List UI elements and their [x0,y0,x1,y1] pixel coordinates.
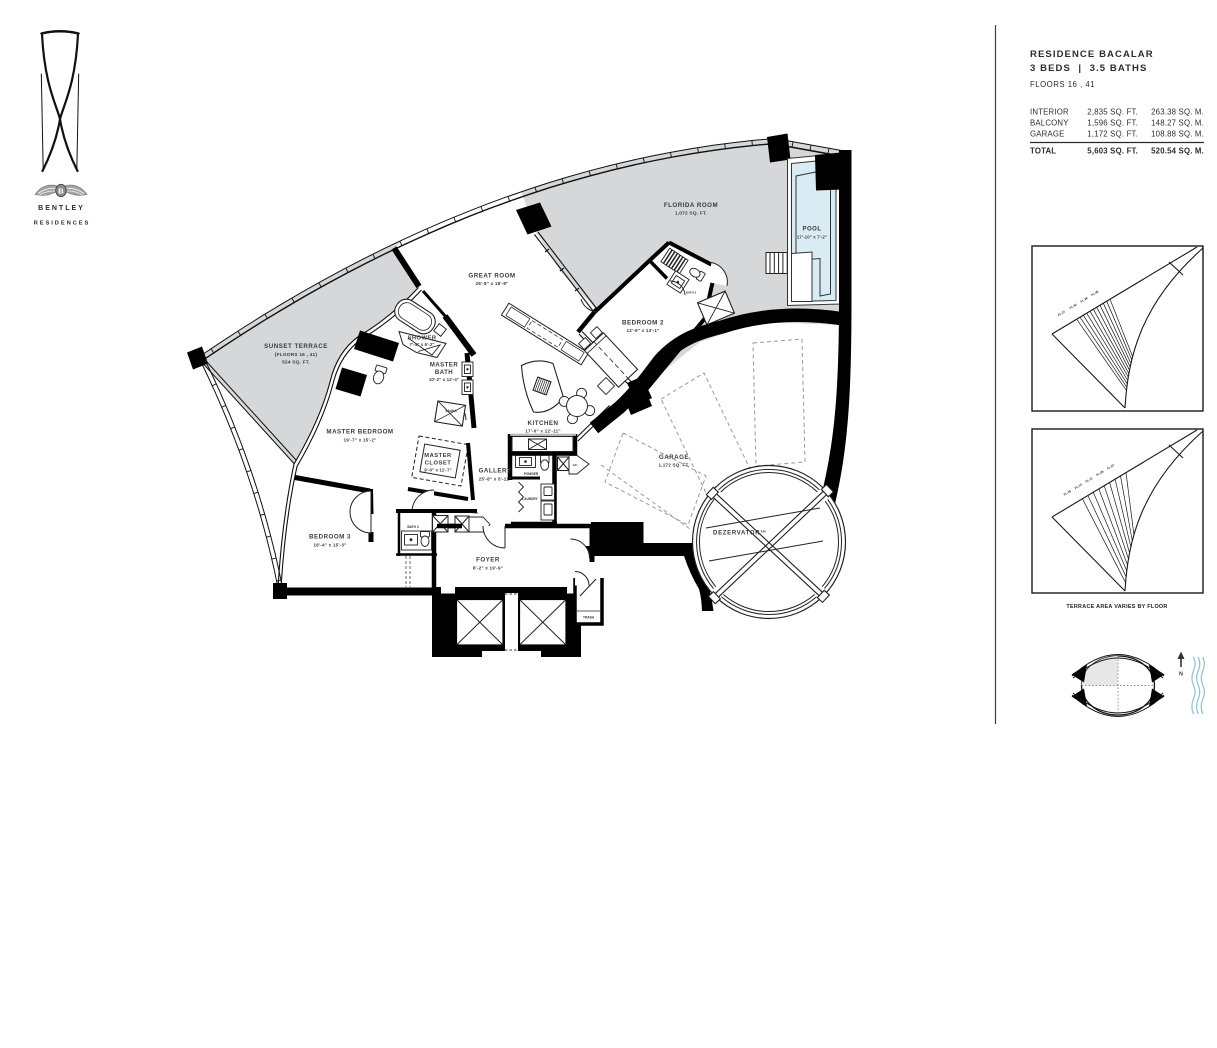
svg-text:FLOORS 16 , 41: FLOORS 16 , 41 [1030,80,1095,89]
svg-text:TRASH: TRASH [583,616,595,620]
svg-text:BATH: BATH [435,370,453,376]
svg-text:MASTER: MASTER [424,453,452,459]
svg-text:GARAGE: GARAGE [1030,130,1065,139]
svg-text:108.88 SQ. M.: 108.88 SQ. M. [1151,130,1204,139]
svg-text:FL.57: FL.57 [1106,463,1115,471]
svg-text:1,072 SQ. FT.: 1,072 SQ. FT. [675,211,707,217]
svg-text:BALCONY: BALCONY [1030,119,1069,128]
svg-text:BATH 2: BATH 2 [686,291,697,295]
svg-text:8'-2" x 19'-9": 8'-2" x 19'-9" [473,566,503,571]
svg-text:17'-10" x 7'-2": 17'-10" x 7'-2" [797,235,827,240]
svg-text:263.38 SQ. M.: 263.38 SQ. M. [1151,108,1204,117]
svg-text:FL.16: FL.16 [1063,489,1072,497]
svg-text:RESIDENCES: RESIDENCES [34,221,91,227]
svg-text:TOTAL: TOTAL [1030,147,1056,156]
svg-text:FL.11: FL.11 [1085,476,1094,484]
svg-text:LAUNDRY: LAUNDRY [522,497,538,501]
svg-text:FL.40: FL.40 [1069,302,1078,310]
svg-text:A/C: A/C [573,463,578,467]
svg-text:N: N [1179,672,1183,678]
svg-text:MASTER BEDROOM: MASTER BEDROOM [326,429,393,436]
svg-text:TERRACE AREA VARIES BY FLOOR: TERRACE AREA VARIES BY FLOOR [1066,604,1167,610]
svg-text:BEDROOM 3: BEDROOM 3 [309,534,351,541]
svg-text:MASTER: MASTER [430,363,459,369]
svg-text:12'-9" x 13'-1": 12'-9" x 13'-1" [626,328,659,333]
svg-text:FL.09: FL.09 [1096,469,1105,477]
svg-text:KITCHEN: KITCHEN [528,420,559,427]
svg-text:1,172 SQ. FT.: 1,172 SQ. FT. [659,463,690,468]
svg-text:CLOSET: CLOSET [425,461,452,467]
svg-text:19'-7" x 15'-2": 19'-7" x 15'-2" [343,438,376,443]
svg-text:FL.37: FL.37 [1057,309,1066,317]
svg-text:FL.36: FL.36 [1080,296,1089,304]
svg-text:2,835 SQ. FT.: 2,835 SQ. FT. [1087,108,1138,117]
svg-text:520.54 SQ. M.: 520.54 SQ. M. [1151,147,1204,156]
svg-text:17'-0" x 12'-11": 17'-0" x 12'-11" [525,429,561,434]
svg-text:A/C: A/C [474,511,480,515]
svg-text:524 SQ. FT.: 524 SQ. FT. [282,360,310,366]
svg-text:BENTLEY: BENTLEY [38,205,85,212]
svg-text:DEZERVATOR™: DEZERVATOR™ [713,530,767,537]
svg-text:9'-0" x 11'-7": 9'-0" x 11'-7" [424,468,451,473]
svg-text:5,603 SQ. FT.: 5,603 SQ. FT. [1087,147,1138,156]
svg-text:FL.48: FL.48 [1090,289,1099,297]
svg-text:BATH 3: BATH 3 [407,525,419,529]
svg-text:POWDER: POWDER [524,472,539,476]
svg-text:GREAT ROOM: GREAT ROOM [468,273,515,280]
svg-text:1,596 SQ. FT.: 1,596 SQ. FT. [1087,119,1138,128]
svg-text:SHOWER: SHOWER [407,336,436,342]
svg-text:B: B [58,186,64,195]
svg-text:3 BEDS | 3.5 BATHS: 3 BEDS | 3.5 BATHS [1030,63,1147,74]
svg-text:INTERIOR: INTERIOR [1030,108,1069,117]
svg-text:FL.14: FL.14 [1074,482,1083,490]
svg-text:7'-4" x 6'-2": 7'-4" x 6'-2" [409,342,434,347]
svg-text:FOYER: FOYER [476,557,500,564]
svg-text:148.27 SQ. M.: 148.27 SQ. M. [1151,119,1204,128]
svg-text:26'-8" x 18'-8": 26'-8" x 18'-8" [475,281,508,286]
svg-text:GALLERY: GALLERY [479,468,512,475]
svg-text:RESIDENCE BACALAR: RESIDENCE BACALAR [1030,49,1154,60]
svg-text:10'-2" x 12'-4": 10'-2" x 12'-4" [429,377,459,382]
svg-text:FLORIDA ROOM: FLORIDA ROOM [664,202,718,209]
svg-text:BEDROOM 2: BEDROOM 2 [622,320,664,327]
svg-text:SAUNA: SAUNA [445,409,457,413]
svg-text:1,172 SQ. FT.: 1,172 SQ. FT. [1087,130,1138,139]
svg-text:POOL: POOL [802,227,821,233]
svg-text:(FLOORS 16 , 41): (FLOORS 16 , 41) [275,352,318,358]
svg-text:SUNSET TERRACE: SUNSET TERRACE [264,343,328,350]
svg-text:GARAGE: GARAGE [659,454,689,461]
svg-text:25'-8" x 5'-11": 25'-8" x 5'-11" [479,477,512,482]
svg-text:16'-4" x 15'-3": 16'-4" x 15'-3" [313,543,346,548]
